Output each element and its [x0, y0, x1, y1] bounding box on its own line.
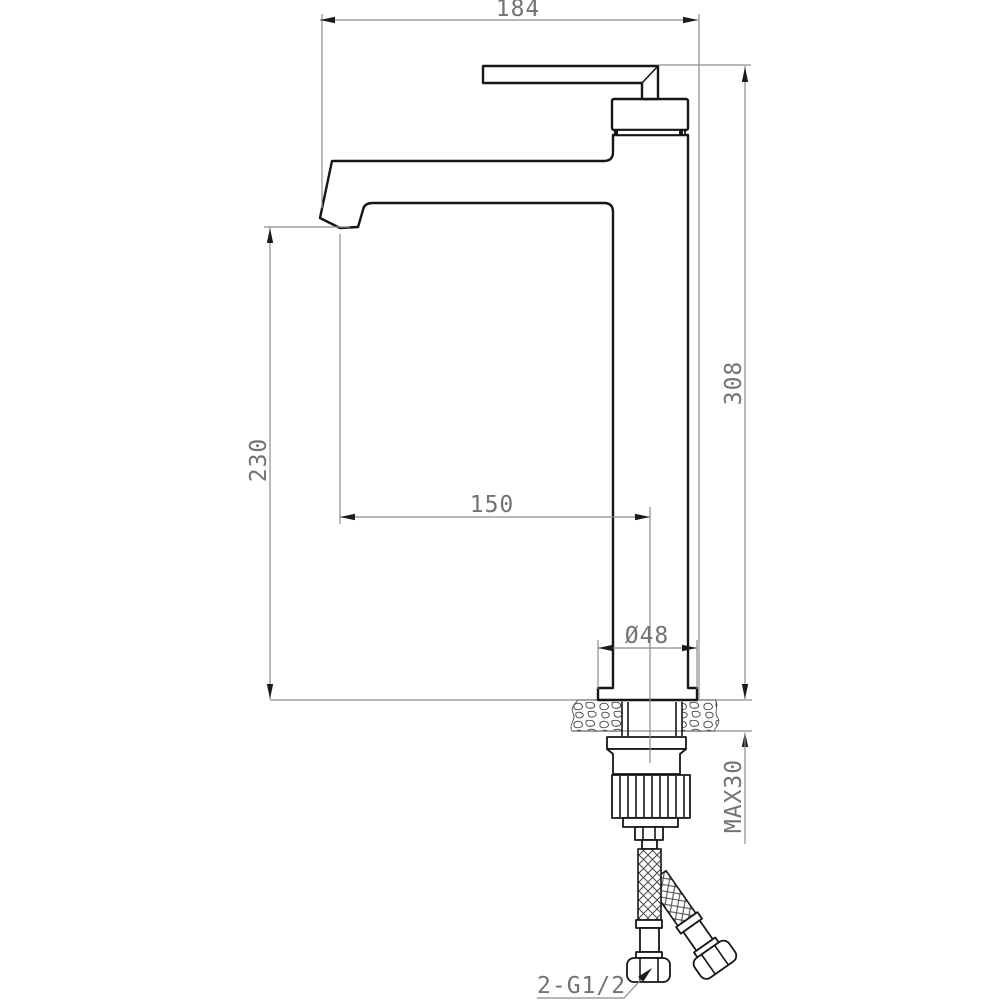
dimension-label-diameter: Ø48 — [625, 623, 670, 649]
dimension-label-308: 308 — [721, 361, 747, 406]
hose-hex-nut — [627, 958, 670, 982]
dimension-label-184: 184 — [496, 0, 541, 22]
faucet-technical-drawing: 184 308 230 150 — [0, 0, 1000, 1000]
cap-ring-tick-left — [614, 129, 618, 135]
arrowhead — [742, 67, 748, 82]
cap-ring-tick-right — [679, 129, 683, 135]
hose-hex-adapter — [635, 827, 663, 840]
dimension-spout-height: 230 — [246, 227, 350, 699]
dimension-label-150: 150 — [470, 492, 515, 518]
counter-cross-section-right — [682, 700, 719, 731]
mounting-washer — [607, 737, 686, 749]
arrowhead — [683, 17, 698, 23]
faucet-body-spout-outline — [320, 135, 697, 700]
deck-section — [270, 700, 752, 731]
counter-cross-section-left — [571, 700, 622, 731]
mounting-hardware — [607, 702, 739, 982]
dimension-spout-reach: 150 — [340, 234, 650, 763]
arrowhead — [598, 645, 613, 651]
flex-hose-straight — [627, 849, 670, 982]
arrowhead — [742, 684, 748, 699]
arrowhead — [267, 684, 273, 699]
dimension-max-deck-thickness: MAX30 — [721, 732, 748, 844]
faucet-body-group — [320, 66, 697, 700]
dimension-label-max30: MAX30 — [721, 759, 747, 833]
mounting-nut — [612, 775, 690, 818]
drawing-canvas: 184 308 230 150 — [0, 0, 1000, 1000]
hose-collar — [636, 920, 662, 928]
cap-ring — [616, 130, 685, 135]
hose-ferrule — [640, 928, 659, 952]
arrowhead — [340, 514, 355, 520]
thread-label: 2-G1/2 — [537, 973, 626, 999]
arrowhead — [267, 228, 273, 243]
hose-braid — [638, 849, 661, 920]
dimension-label-230: 230 — [246, 438, 272, 483]
mounting-cone — [607, 749, 686, 774]
handle-cap — [612, 99, 688, 130]
arrowhead — [682, 645, 697, 651]
shank-collar — [623, 818, 678, 827]
lever-handle — [483, 66, 658, 99]
hose-neck — [642, 840, 657, 849]
